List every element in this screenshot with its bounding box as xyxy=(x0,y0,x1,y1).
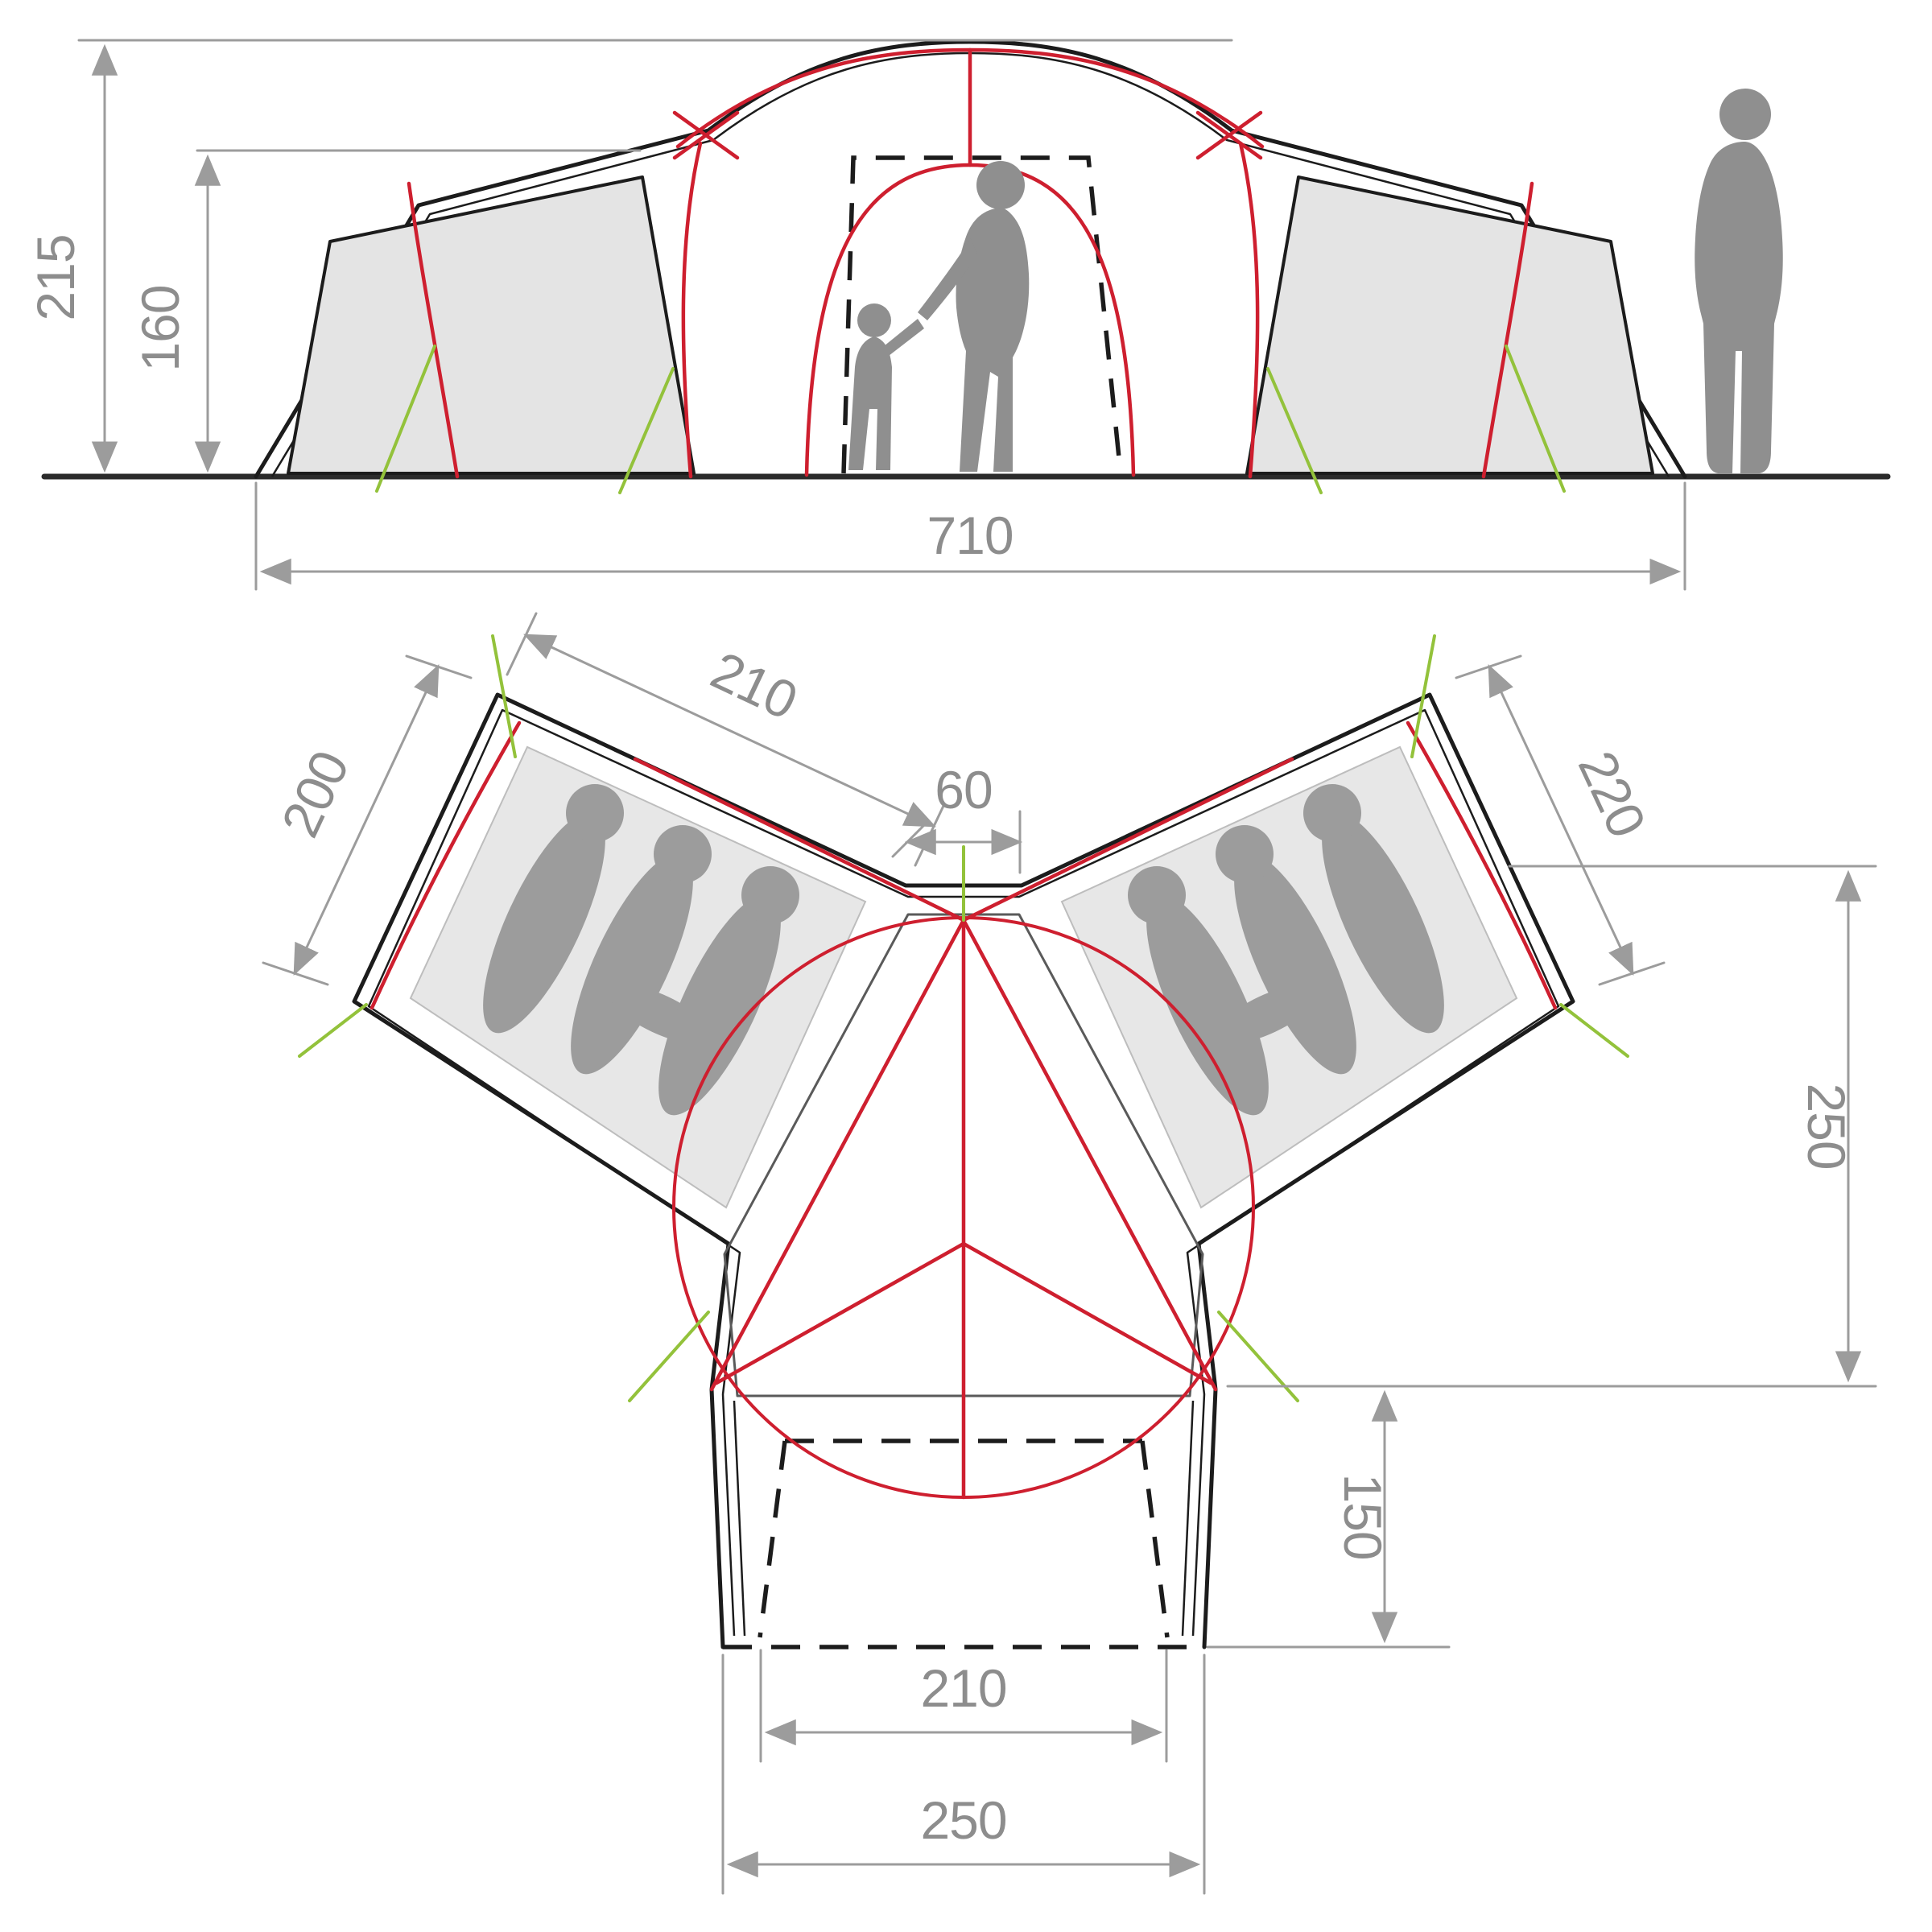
dim-left-wing-width-label: 200 xyxy=(270,742,360,845)
left-bedroom-panel xyxy=(288,177,694,473)
diagram-canvas: 215 160 710 xyxy=(0,0,1932,1932)
guy-line xyxy=(630,1312,708,1401)
man-silhouette-body xyxy=(1695,142,1783,473)
dim-height-side-label: 160 xyxy=(130,285,190,371)
dim-porch-inner-width-label: 210 xyxy=(920,1658,1006,1718)
man-silhouette-head xyxy=(1719,89,1771,140)
dim-right-wing-length-label: 220 xyxy=(1567,742,1657,845)
extension-tick xyxy=(1456,656,1521,678)
tent-dimension-diagram: 215 160 710 xyxy=(0,0,1932,1932)
extension-tick xyxy=(263,963,328,985)
dim-width-total-label: 710 xyxy=(927,506,1013,565)
right-inner-pole xyxy=(1241,143,1257,477)
dim-left-wing-length-label: 210 xyxy=(703,640,806,731)
extension-tick xyxy=(1600,963,1664,985)
left-inner-pole xyxy=(683,143,700,477)
porch-left-wall-inner xyxy=(734,1401,745,1636)
guy-line xyxy=(1561,1005,1628,1056)
child-silhouette-body xyxy=(848,336,892,470)
dim-porch-outer-width-label: 250 xyxy=(920,1790,1006,1850)
right-bedroom-panel xyxy=(1247,177,1653,473)
guy-line xyxy=(299,1005,366,1056)
elevation-view: 215 160 710 xyxy=(26,40,1888,589)
groundsheet-dashed-right xyxy=(1142,1441,1167,1637)
extension-tick xyxy=(507,613,536,675)
dim-center-gap-label: 60 xyxy=(935,760,992,819)
woman-silhouette-head xyxy=(976,161,1025,209)
floor-plan-view: 210 200 60 220 250 150 xyxy=(263,613,1876,1893)
dim-height-total-label: 215 xyxy=(26,234,85,320)
dim-porch-depth-label: 150 xyxy=(1333,1473,1393,1559)
groundsheet-dashed-left xyxy=(760,1441,785,1637)
porch-right-wall-inner xyxy=(1183,1401,1193,1636)
extension-tick xyxy=(407,656,471,678)
child-silhouette-head xyxy=(857,303,891,337)
dim-lounge-depth-label: 250 xyxy=(1797,1083,1856,1169)
